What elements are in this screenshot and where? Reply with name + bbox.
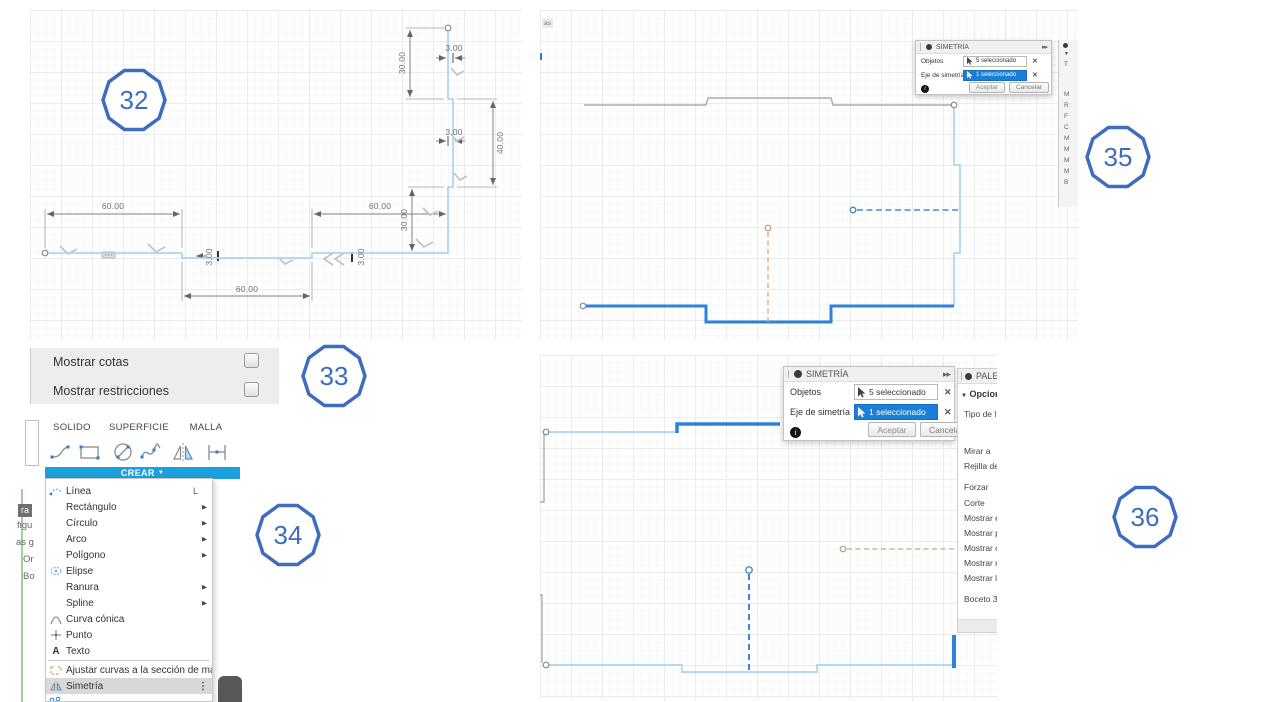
palette-footer: [958, 619, 997, 633]
left-profile-line[interactable]: [540, 433, 544, 502]
palette-item-letter: C: [1064, 124, 1069, 131]
badge-number: 32: [99, 65, 169, 135]
palette-item-letter: M: [1064, 168, 1069, 175]
palette-item-letter: M: [1064, 135, 1069, 142]
objects-label: Objetos: [790, 387, 821, 397]
menu-item-elipse[interactable]: Elipse: [46, 563, 212, 579]
palette-item-mostrar-la[interactable]: Mostrar la: [964, 573, 997, 583]
detach-icon[interactable]: ▸▸: [1042, 43, 1047, 51]
clear-selection-icon[interactable]: ✕: [944, 387, 952, 398]
axis-endpoint[interactable]: [850, 207, 856, 213]
shortcut-label: L: [193, 486, 198, 496]
options-ellipsis-icon[interactable]: ⋮: [198, 681, 208, 692]
menu-item-poligono[interactable]: Polígono ▶: [46, 547, 212, 563]
background-fragment: Or: [23, 554, 34, 565]
palette-command-icon: [1063, 43, 1068, 48]
construction-endpoint[interactable]: [765, 225, 771, 231]
section-label: Opcione: [969, 389, 997, 399]
sketch-viewport-35: as SIMETRÍA ▸▸: [540, 10, 1078, 340]
cursor-shape: [218, 676, 242, 702]
sketch-endpoint[interactable]: [42, 250, 48, 256]
sketch-geometry-32: [30, 10, 522, 340]
palette-item-letter: T: [1064, 61, 1068, 68]
simetria-dialog: SIMETRÍA ▸▸ Objetos 5 seleccionado ✕ Eje…: [783, 366, 955, 441]
axis-value: 1 seleccionado: [869, 407, 926, 417]
clear-selection-icon[interactable]: ✕: [1032, 71, 1038, 79]
menu-item-ranura[interactable]: Ranura ▶: [46, 579, 212, 595]
menu-item-punto[interactable]: Punto: [46, 627, 212, 643]
ellipse-icon: [46, 565, 66, 577]
menu-item-label: Arco: [66, 534, 87, 545]
menu-divider: [48, 660, 210, 661]
line-tool-icon[interactable]: [49, 441, 73, 463]
dimension-tool-icon[interactable]: [205, 441, 229, 463]
dialog-titlebar[interactable]: SIMETRÍA ▸▸: [916, 41, 1051, 54]
submenu-arrow-icon: ▶: [202, 535, 207, 543]
cancel-button[interactable]: Cancelar: [1009, 82, 1049, 93]
section-caret-icon: ▼: [961, 393, 967, 399]
palette-item-letter: M: [1064, 146, 1069, 153]
submenu-arrow-icon: ▶: [202, 551, 207, 559]
background-fragment: figu: [17, 520, 32, 531]
palette-item-boceto-3d[interactable]: Boceto 3D: [964, 594, 997, 604]
menu-item-label: Simetría: [66, 681, 103, 692]
clear-selection-icon[interactable]: ✕: [944, 407, 952, 418]
fit-curves-icon: [46, 664, 66, 676]
mirror-tool-icon[interactable]: [171, 441, 195, 463]
sketch-endpoint[interactable]: [580, 303, 586, 309]
palette-item-rejilla[interactable]: Rejilla del l: [964, 461, 997, 471]
paleta-panel: PALETA ▼ Opcione Tipo de lín Mirar a Rej…: [957, 368, 997, 633]
menu-item-label: Punto: [66, 630, 92, 641]
palette-item-letter: R: [1064, 102, 1069, 109]
palette-item-mostrar-re[interactable]: Mostrar re: [964, 558, 997, 568]
dim-label-40[interactable]: 40.00: [495, 132, 505, 154]
simetria-dialog: SIMETRÍA ▸▸ Objetos 5 seleccionado ✕ Eje…: [915, 40, 1052, 95]
sketch-endpoint[interactable]: [445, 25, 451, 31]
dialog-title: SIMETRÍA: [936, 44, 969, 51]
background-fragment-selected: ra: [18, 504, 32, 517]
dim-label-3-mid[interactable]: 3.00: [445, 127, 462, 137]
crear-menu: Línea L Rectángulo ▶ Círculo ▶ Arco ▶ Po…: [45, 478, 213, 702]
axis-value: 1 seleccionado: [976, 72, 1016, 78]
palette-item-corte[interactable]: Corte: [964, 498, 985, 508]
show-constraints-label: Mostrar restricciones: [53, 384, 169, 398]
cropped-palette-strip: ▼ T M R F C M M M M B: [1058, 40, 1078, 207]
construction-endpoint[interactable]: [840, 546, 846, 552]
badge-number: 36: [1110, 482, 1180, 552]
sketch-profile-line[interactable]: [42, 25, 453, 258]
right-profile-line[interactable]: [954, 105, 960, 306]
menu-item-texto[interactable]: A Texto: [46, 643, 212, 659]
menu-item-label: Curva cónica: [66, 614, 124, 625]
clear-selection-icon[interactable]: ✕: [1032, 57, 1038, 65]
palette-item-letter: F: [1064, 113, 1068, 120]
objects-value: 5 seleccionado: [869, 387, 926, 397]
circle-tool-icon[interactable]: [111, 441, 135, 463]
tab-solido[interactable]: SOLIDO: [53, 422, 91, 433]
palette-item-mostrar-el[interactable]: Mostrar el: [964, 513, 997, 523]
paleta-title: PALETA: [976, 371, 997, 381]
submenu-arrow-icon: ▶: [202, 583, 207, 591]
dialog-titlebar[interactable]: SIMETRÍA ▸▸: [784, 367, 954, 382]
objects-selection-field[interactable]: 5 seleccionado: [963, 56, 1027, 67]
objects-label: Objetos: [921, 58, 943, 65]
background-fragment: Bo: [23, 571, 35, 582]
sketch-viewport-36: SIMETRÍA ▸▸ Objetos 5 seleccionado ✕ Eje…: [540, 355, 997, 700]
conic-curve-icon: [46, 613, 66, 625]
show-dimensions-label: Mostrar cotas: [53, 355, 129, 369]
cropped-icon-fragment: [540, 53, 542, 60]
step-badge-35: 35: [1083, 122, 1153, 192]
collapsed-panel-fragment: [25, 420, 39, 466]
dim-label-30-top[interactable]: 30.00: [397, 52, 407, 74]
menu-item-linea[interactable]: Línea L: [46, 483, 212, 499]
menu-item-curva-conica[interactable]: Curva cónica: [46, 611, 212, 627]
chevron-down-icon: ▼: [158, 470, 164, 476]
background-fragment: as g: [16, 537, 34, 548]
menu-item-arco[interactable]: Arco ▶: [46, 531, 212, 547]
paleta-titlebar[interactable]: PALETA: [958, 369, 997, 384]
menu-item-circulo[interactable]: Círculo ▶: [46, 515, 212, 531]
palette-item-letter: M: [1064, 91, 1069, 98]
axis-label: Eje de simetría: [790, 407, 850, 417]
submenu-arrow-icon: ▶: [202, 599, 207, 607]
tab-superficie[interactable]: SUPERFICIE: [109, 422, 169, 433]
tab-malla[interactable]: MALLA: [190, 422, 223, 433]
crear-label: CREAR: [121, 468, 155, 478]
step-badge-34: 34: [253, 500, 323, 570]
detach-icon[interactable]: ▸▸: [943, 369, 950, 380]
drag-grip-icon[interactable]: [788, 370, 791, 378]
accept-button[interactable]: Aceptar: [868, 422, 916, 437]
dim-label-60-left[interactable]: 60.00: [102, 201, 124, 211]
selected-top-segment[interactable]: [677, 424, 780, 433]
objects-selection-field[interactable]: 5 seleccionado: [854, 384, 938, 400]
axis-selection-field[interactable]: 1 seleccionado: [963, 70, 1027, 81]
composite-page: 60.00 60.00 60.00 30.00 40.00 30.00 3.00…: [0, 0, 1265, 702]
show-constraints-checkbox[interactable]: [244, 382, 259, 397]
menu-item-partial[interactable]: [46, 694, 212, 702]
menu-item-label: Línea: [66, 486, 91, 497]
display-options-panel: Mostrar cotas Mostrar restricciones: [30, 348, 279, 404]
step-badge-36: 36: [1110, 482, 1180, 552]
dim-label-3-left[interactable]: 3.00: [204, 248, 214, 265]
dialog-title: SIMETRÍA: [806, 369, 849, 379]
cropped-text-fragment: as: [542, 19, 553, 28]
sketch-toolbar: SOLIDO SUPERFICIE MALLA: [45, 417, 240, 467]
drag-grip-icon[interactable]: [961, 372, 962, 380]
menu-item-label: Texto: [66, 646, 90, 657]
opciones-section-header[interactable]: ▼ Opcione: [961, 389, 997, 399]
menu-item-label: Ranura: [66, 582, 99, 593]
step-badge-32: 32: [99, 65, 169, 135]
section-caret-icon[interactable]: ▼: [1064, 51, 1069, 57]
sketch-endpoint[interactable]: [543, 429, 549, 435]
sketch-viewport-32: 60.00 60.00 60.00 30.00 40.00 30.00 3.00…: [30, 10, 522, 340]
line-icon: [46, 485, 66, 497]
badge-number: 35: [1083, 122, 1153, 192]
menu-item-simetria[interactable]: Simetría ⋮: [46, 678, 212, 694]
menu-item-label: Ajustar curvas a la sección de malla: [66, 665, 213, 676]
dim-label-30-mid[interactable]: 30.00: [399, 209, 409, 231]
objects-value: 5 seleccionado: [976, 58, 1016, 64]
palette-item-mostrar-pu[interactable]: Mostrar pu: [964, 528, 997, 538]
sketch-endpoint[interactable]: [543, 662, 549, 668]
dim-label-60-right[interactable]: 60.00: [369, 201, 391, 211]
menu-item-label: Rectángulo: [66, 502, 117, 513]
dim-label-60-bottom[interactable]: 60.00: [236, 284, 258, 294]
palette-item-mostrar-co[interactable]: Mostrar co: [964, 543, 997, 553]
step-badge-33: 33: [299, 341, 369, 411]
menu-item-label: Elipse: [66, 566, 93, 577]
dim-label-3-top[interactable]: 3.00: [445, 43, 462, 53]
left-profile-line[interactable]: [540, 595, 542, 663]
submenu-arrow-icon: ▶: [202, 519, 207, 527]
command-icon: [926, 44, 932, 50]
pointer-icon: [858, 407, 866, 418]
dim-label-3-right[interactable]: 3.00: [356, 248, 366, 265]
mirror-icon: [46, 680, 66, 692]
palette-item-letter: M: [1064, 157, 1069, 164]
spline-tool-icon[interactable]: [139, 441, 163, 463]
badge-number: 34: [253, 500, 323, 570]
badge-number: 33: [299, 341, 369, 411]
menu-item-label: Spline: [66, 598, 94, 609]
pointer-icon: [967, 71, 973, 79]
submenu-arrow-icon: ▶: [202, 503, 207, 511]
menu-item-label: Polígono: [66, 550, 105, 561]
show-dimensions-checkbox[interactable]: [244, 353, 259, 368]
drag-grip-icon[interactable]: [920, 43, 923, 50]
sketch-endpoint[interactable]: [951, 102, 957, 108]
info-icon[interactable]: i: [790, 427, 801, 438]
command-icon: [794, 370, 802, 378]
menu-item-ajustar-curvas[interactable]: Ajustar curvas a la sección de malla: [46, 662, 212, 678]
axis-endpoint[interactable]: [746, 567, 752, 573]
pointer-icon: [967, 57, 973, 65]
palette-item-letter: B: [1064, 179, 1068, 186]
menu-item-rectangulo[interactable]: Rectángulo ▶: [46, 499, 212, 515]
info-icon[interactable]: i: [921, 85, 929, 93]
palette-item-forzar[interactable]: Forzar: [964, 482, 989, 492]
pattern-icon: [46, 696, 66, 702]
pointer-icon: [858, 387, 866, 398]
axis-label: Eje de simetría: [921, 72, 964, 79]
palette-command-icon: [965, 373, 972, 380]
palette-item-mirar-a[interactable]: Mirar a: [964, 446, 990, 456]
accept-button[interactable]: Aceptar: [969, 82, 1005, 93]
axis-selection-field[interactable]: 1 seleccionado: [854, 404, 938, 420]
menu-item-spline[interactable]: Spline ▶: [46, 595, 212, 611]
menu-item-label: Círculo: [66, 518, 98, 529]
rectangle-tool-icon[interactable]: [78, 441, 102, 463]
mirrored-top-profile[interactable]: [584, 98, 954, 105]
palette-item-tipo-de-linea[interactable]: Tipo de lín: [964, 409, 997, 419]
text-icon: A: [46, 646, 66, 657]
point-icon: [46, 629, 66, 641]
